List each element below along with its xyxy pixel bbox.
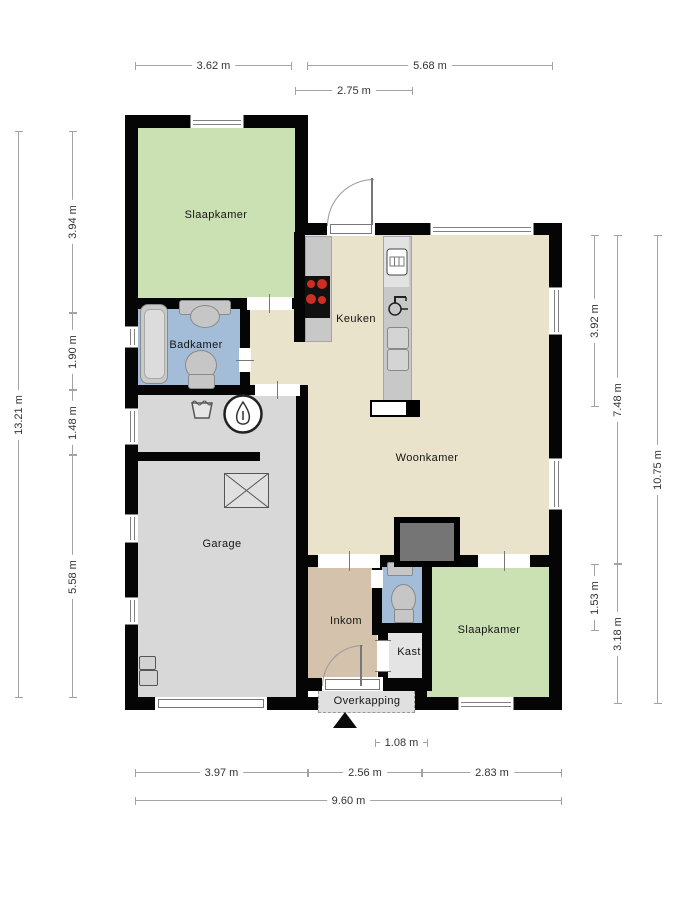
bedroom-top-label: Slaapkamer — [185, 209, 248, 221]
garage-label: Garage — [202, 538, 241, 550]
dimension-label: 3.97 m — [200, 767, 244, 779]
bathroom-label: Badkamer — [169, 339, 222, 351]
opening-tick — [277, 381, 278, 399]
dimension-label: 1.08 m — [380, 737, 424, 749]
utility-meter-icon — [139, 656, 156, 670]
window-living-top — [430, 223, 534, 235]
dimension-label: 1.90 m — [67, 330, 79, 374]
door-opening-closet — [377, 640, 389, 672]
boiler-icon — [222, 393, 264, 435]
window-garage-1 — [125, 408, 138, 445]
opening-tick — [349, 551, 350, 571]
burner-icon — [317, 279, 327, 289]
washbasin-bowl — [190, 305, 220, 328]
dimension-label: 3.94 m — [67, 200, 79, 244]
opening-tick — [375, 640, 391, 641]
dimension-line: 10.75 m — [657, 235, 658, 704]
dimension-label: 2.75 m — [332, 85, 376, 97]
dimension-label: 1.53 m — [589, 576, 601, 620]
dimension-line: 3.18 m — [617, 564, 618, 704]
interior-wall-kitchen-west — [294, 232, 305, 342]
dimension-line: 3.97 m — [135, 772, 308, 773]
window-right-lower — [549, 458, 562, 510]
dimension-label: 1.48 m — [67, 401, 79, 445]
dimension-label: 2.83 m — [470, 767, 514, 779]
dimension-label: 3.62 m — [192, 60, 236, 72]
toilet-tank — [188, 374, 215, 389]
dimension-line: 1.08 m — [375, 742, 428, 743]
exterior-wall-notch — [295, 115, 308, 228]
dimension-label: 9.60 m — [327, 795, 371, 807]
closet-label: Kast — [397, 646, 421, 658]
interior-wall-bathroom-east — [240, 298, 250, 390]
dimension-line: 2.75 m — [295, 90, 413, 91]
dimension-label: 5.58 m — [67, 555, 79, 599]
window-garage-2 — [125, 514, 138, 543]
back-door-arc — [327, 179, 374, 226]
dimension-line: 5.68 m — [307, 65, 553, 66]
oven-icon — [386, 248, 408, 278]
interior-wall-laundry — [138, 452, 260, 461]
opening-tick — [269, 294, 270, 313]
window-bedroom-bottom — [458, 697, 514, 710]
burner-icon — [306, 294, 316, 304]
floor-plan: Overkapping Slaapkamer Badkamer Keuken W… — [0, 0, 675, 900]
dimension-line: 5.58 m — [72, 455, 73, 698]
living-label: Woonkamer — [396, 452, 459, 464]
dimension-label: 5.68 m — [408, 60, 452, 72]
interior-wall-garage-east — [296, 385, 308, 697]
burner-icon — [318, 296, 326, 304]
window-bathroom — [125, 326, 138, 348]
wc-toilet-base — [394, 609, 414, 623]
dimension-line: 1.53 m — [594, 564, 595, 631]
front-door-leaf — [360, 645, 362, 686]
fridge-icon — [387, 327, 409, 349]
bathtub-inner — [144, 309, 165, 379]
fireplace — [394, 517, 460, 567]
dimension-line: 3.92 m — [594, 235, 595, 407]
dimension-line: 3.62 m — [135, 65, 292, 66]
back-door-leaf — [371, 178, 373, 225]
dimension-line: 13.21 m — [18, 131, 19, 698]
dimension-line: 3.94 m — [72, 131, 73, 313]
dimension-line: 1.90 m — [72, 313, 73, 390]
fridge-icon — [387, 349, 409, 371]
kitchen-bench-end — [406, 400, 420, 417]
dimension-label: 3.92 m — [589, 299, 601, 343]
opening-tick — [375, 671, 391, 672]
dimension-line: 1.48 m — [72, 390, 73, 455]
window-garage-3 — [125, 597, 138, 625]
bedroom-bottom-label: Slaapkamer — [458, 624, 521, 636]
entry-label: Inkom — [330, 615, 362, 627]
opening-tick — [236, 360, 254, 361]
dimension-line: 2.56 m — [308, 772, 422, 773]
kitchen-bench — [370, 400, 408, 417]
dimension-line: 2.83 m — [422, 772, 562, 773]
living-kitchen-floor — [300, 228, 555, 560]
utility-meter-icon — [139, 670, 158, 686]
washing-basket-icon — [188, 396, 216, 422]
interior-wall-wc-bottom — [372, 623, 432, 633]
dimension-label: 3.18 m — [612, 612, 624, 656]
dimension-line: 7.48 m — [617, 235, 618, 564]
window-right-upper — [549, 287, 562, 335]
kitchen-label: Keuken — [336, 313, 376, 325]
dimension-label: 7.48 m — [612, 378, 624, 422]
burner-icon — [307, 280, 315, 288]
dimension-line: 9.60 m — [135, 800, 562, 801]
opening-tick — [504, 551, 505, 571]
dimension-label: 2.56 m — [343, 767, 387, 779]
canopy-label: Overkapping — [334, 695, 401, 707]
garage-door — [155, 697, 267, 710]
skylight-icon — [224, 473, 269, 508]
door-opening-wc — [371, 570, 383, 588]
dimension-label: 10.75 m — [652, 445, 664, 495]
dimension-label: 13.21 m — [13, 390, 25, 440]
kitchen-sink-icon — [387, 292, 409, 318]
north-arrow-icon — [333, 712, 357, 728]
window-bedroom-top — [190, 115, 244, 128]
